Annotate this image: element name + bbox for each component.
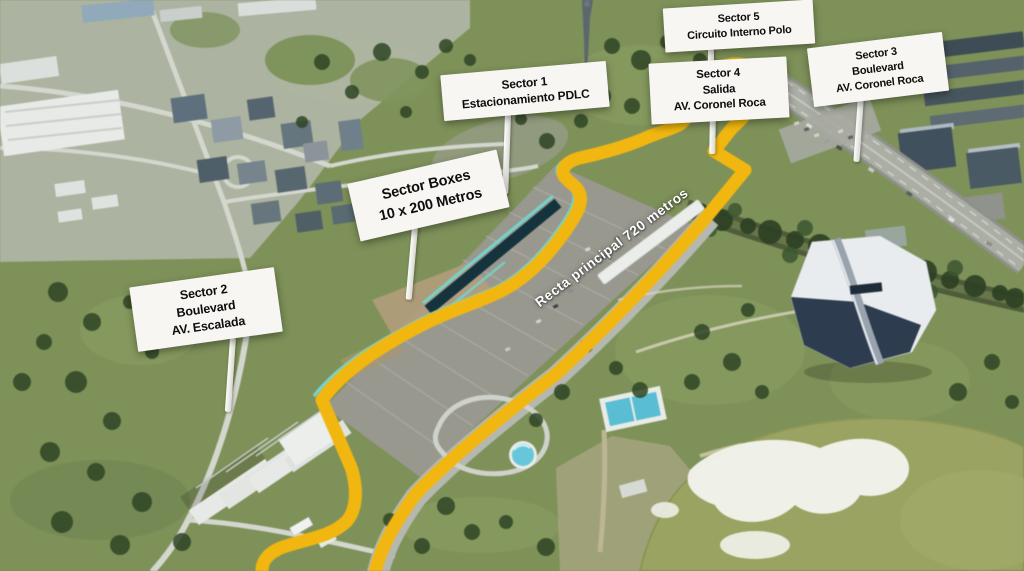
aerial-circuit-map: Recta principal 720 metros Sector 5 Circ… xyxy=(0,0,1024,571)
sign-sector-5: Sector 5 Circuito Interno Polo xyxy=(663,0,815,52)
sign-sector-4: Sector 4 Salida AV. Coronel Roca xyxy=(649,56,790,124)
